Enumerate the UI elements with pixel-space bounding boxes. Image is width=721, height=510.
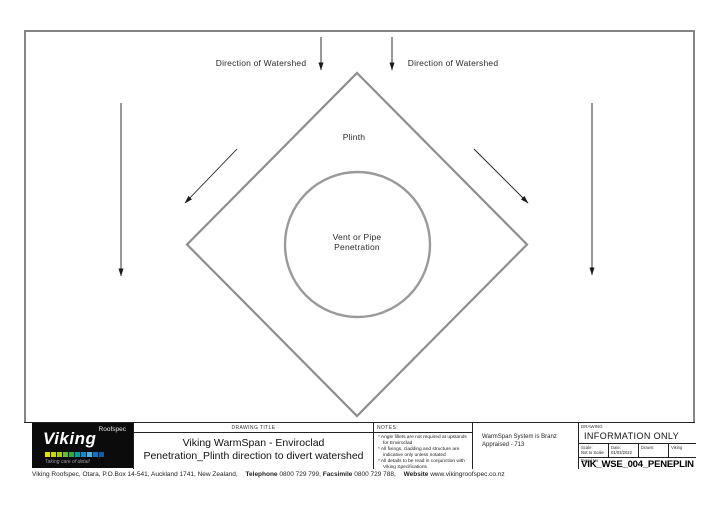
notes-header: NOTES:: [374, 423, 472, 433]
footer-contact-line: Viking Roofspec, Otara, P.O.Box 14-541, …: [32, 471, 505, 478]
footer-website-label: Website: [404, 471, 429, 478]
detail-number-value: VIK_WSE_004_PENEPLIN: [579, 459, 696, 470]
note-item: * Angle fillets are not required at upst…: [378, 435, 469, 446]
logo-stripe-square: [57, 452, 62, 457]
date-value: 01/03/2022: [611, 450, 638, 456]
logo-stripe-square: [51, 452, 56, 457]
drawing-info-cell: DRAWING INFORMATION ONLY Scale: Not to S…: [578, 423, 695, 469]
footer-website-value: www.vikingroofspec.co.nz: [430, 471, 504, 478]
watershed-arrow-diag-right: [474, 149, 528, 203]
branz-line1: WarmSpan System is Branz: [482, 433, 578, 441]
logo-brand-text: Viking: [43, 429, 96, 449]
logo-roofspec-text: Roofspec: [99, 426, 126, 433]
drawing-title-line2: Penetration_Plinth direction to divert w…: [134, 450, 373, 463]
drawing-sheet: Direction of Watershed Direction of Wate…: [0, 0, 721, 510]
penetration-label-line1: Vent or Pipe: [333, 232, 382, 242]
branz-appraisal-cell: WarmSpan System is Branz Appraised - 713: [472, 423, 578, 469]
logo-stripe-square: [45, 452, 50, 457]
drawn-label: Drawn:: [641, 445, 668, 450]
penetration-label-line2: Penetration: [333, 242, 382, 252]
detail-number-row: Detail No VIK_WSE_004_PENEPLIN: [579, 457, 696, 469]
notes-list: * Angle fillets are not required at upst…: [374, 433, 472, 471]
logo-stripe-square: [75, 452, 80, 457]
drawing-info-header: DRAWING: [581, 424, 603, 429]
drawing-title-text: Viking WarmSpan - Enviroclad Penetration…: [134, 433, 373, 463]
logo-stripe-square: [81, 452, 86, 457]
branz-line2: Appraised - 713: [482, 441, 578, 449]
logo-stripe-square: [69, 452, 74, 457]
logo-stripe-square: [99, 452, 104, 457]
drawn-by-cell: Viking: [669, 444, 696, 457]
watershed-arrow-diag-left: [185, 149, 237, 203]
drawing-title-header: DRAWING TITLE: [134, 423, 373, 433]
footer-facsimile-label: Facsimile: [323, 471, 353, 478]
footer-telephone-label: Telephone: [246, 471, 278, 478]
logo-stripe-square: [87, 452, 92, 457]
footer-telephone-value: 0800 729 799,: [279, 471, 321, 478]
scale-date-drawn-grid: Scale: Not to Scale Date: 01/03/2022 Dra…: [579, 443, 696, 457]
viking-logo: Roofspec Viking Taking care of detail: [32, 423, 133, 468]
footer-facsimile-value: 0800 729 788,: [354, 471, 396, 478]
watershed-label-left: Direction of Watershed: [216, 58, 307, 68]
logo-stripe: [45, 452, 104, 457]
note-item: * All details to be read in conjunction …: [378, 459, 469, 470]
note-item: * All fixings, cladding and structure ar…: [378, 447, 469, 458]
watershed-label-right: Direction of Watershed: [408, 58, 499, 68]
drawing-title-cell: DRAWING TITLE Viking WarmSpan - Envirocl…: [133, 423, 373, 469]
logo-tagline: Taking care of detail: [45, 459, 90, 465]
date-cell: Date: 01/03/2022: [609, 444, 639, 457]
scale-value: Not to Scale: [581, 450, 608, 456]
branz-appraisal-text: WarmSpan System is Branz Appraised - 713: [473, 423, 578, 449]
scale-cell: Scale: Not to Scale: [579, 444, 609, 457]
logo-stripe-square: [63, 452, 68, 457]
drawn-cell: Drawn:: [639, 444, 669, 457]
drawing-title-line1: Viking WarmSpan - Enviroclad: [134, 437, 373, 450]
penetration-label: Vent or Pipe Penetration: [333, 232, 382, 252]
notes-cell: NOTES: * Angle fillets are not required …: [373, 423, 472, 469]
title-block: Roofspec Viking Taking care of detail DR…: [24, 422, 695, 468]
information-only-status: INFORMATION ONLY: [584, 431, 679, 441]
logo-stripe-square: [93, 452, 98, 457]
drawn-value: Viking: [671, 445, 696, 450]
plinth-label: Plinth: [343, 132, 365, 142]
footer-address: Viking Roofspec, Otara, P.O.Box 14-541, …: [32, 471, 238, 478]
